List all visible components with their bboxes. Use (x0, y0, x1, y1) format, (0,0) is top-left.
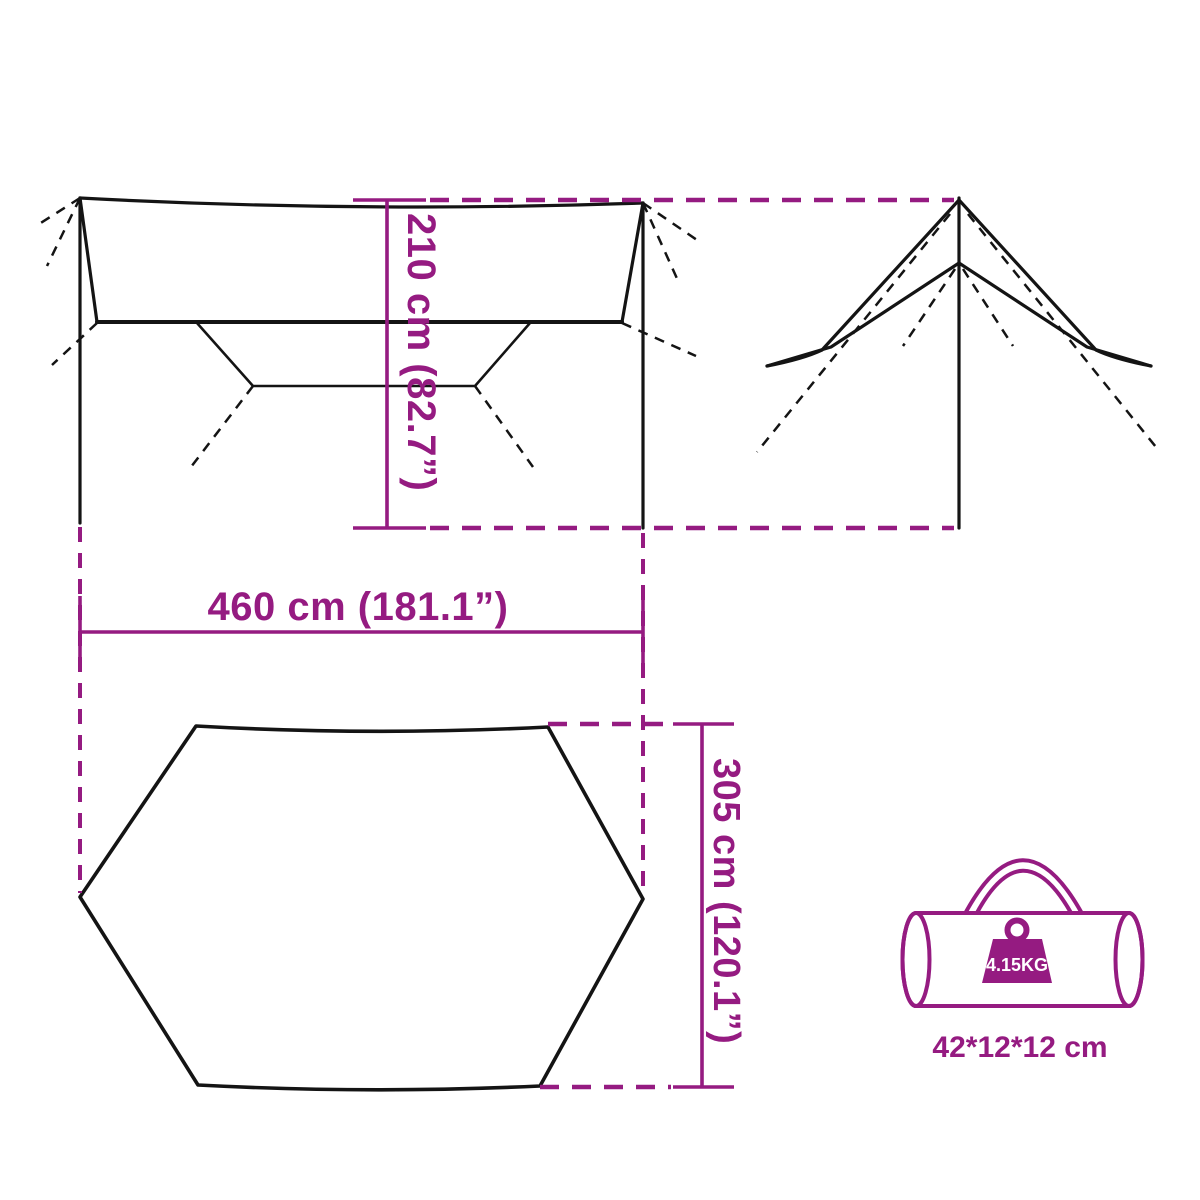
tarp-front-view (36, 198, 697, 528)
height-dimension-label: 210 cm (82.7”) (399, 213, 443, 491)
guy-line (475, 386, 533, 467)
tarp-left-side-edge (80, 198, 97, 322)
guy-line (622, 323, 696, 356)
width-dimension-label: 460 cm (181.1”) (207, 585, 508, 629)
tarp-hexagon-outline (80, 726, 643, 1090)
guy-line (36, 198, 80, 226)
tarp-right-side-edge (622, 203, 643, 322)
width-dimension: 460 cm (181.1”) (80, 527, 643, 895)
tarp-front-flap (197, 323, 530, 386)
depth-dimension-label: 305 cm (120.1”) (705, 758, 747, 1044)
guy-lines-front (36, 198, 697, 467)
weight-badge-label: 4.15KG (986, 955, 1048, 975)
guy-line (757, 214, 950, 452)
tarp-top-view (80, 726, 643, 1090)
guy-line (52, 323, 97, 365)
guy-line (191, 386, 253, 467)
bag-size-label: 42*12*12 cm (932, 1031, 1107, 1064)
tarp-dimension-diagram-page: 210 cm (82.7”) 460 cm (181.1”) 305 cm (1… (0, 0, 1200, 1200)
weight-knob (1008, 921, 1027, 940)
tarp-side-view (757, 198, 1160, 528)
height-dimension: 210 cm (82.7”) (353, 200, 954, 528)
guy-line (903, 269, 955, 346)
carry-bag: 4.15KG 42*12*12 cm (903, 860, 1143, 1064)
roof-inner-left (767, 263, 959, 366)
diagram-canvas: 210 cm (82.7”) 460 cm (181.1”) 305 cm (1… (0, 0, 1200, 1200)
guy-line (968, 214, 1160, 452)
roof-inner-right (959, 263, 1151, 366)
